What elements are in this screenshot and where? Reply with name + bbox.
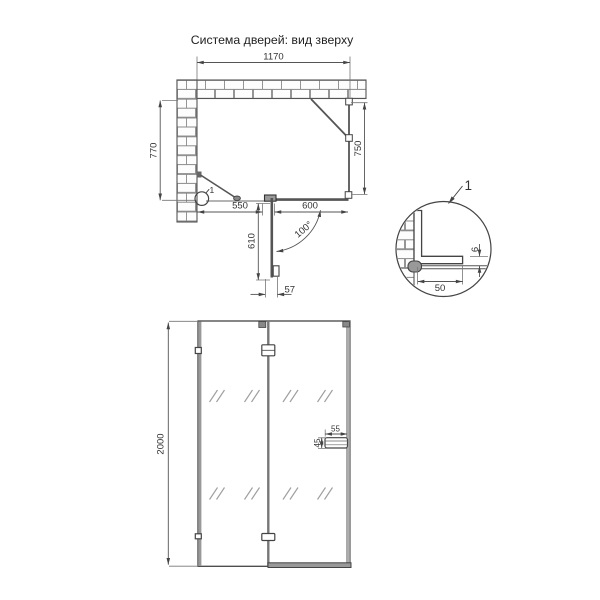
dim-770-label: 770: [149, 143, 160, 159]
dim-55-label: 55: [331, 425, 340, 434]
door-angle-label: 100°: [293, 219, 315, 240]
dim-45-label: 45: [313, 438, 322, 447]
detail-leader: 1: [449, 178, 473, 204]
dim-1170-label: 1170: [263, 52, 283, 63]
dim-57-label: 57: [285, 285, 296, 296]
dim-panel-right: 600: [275, 201, 349, 216]
dim-2000-label: 2000: [156, 433, 167, 454]
dim-550-label: 550: [232, 201, 248, 212]
top-bracket-right: [343, 322, 350, 328]
detail-callout: 1: [195, 185, 215, 206]
brick-wall-top: [177, 80, 366, 99]
door-pivot-bracket: [265, 195, 277, 201]
door-handle-front: [325, 438, 348, 448]
dim-height: 2000: [156, 321, 199, 566]
top-bracket-mid: [259, 322, 266, 328]
drawing-page: Система дверей: вид зверху 1170 770: [0, 0, 600, 600]
callout-1-label: 1: [210, 185, 215, 195]
detail-view: 50 6 1: [394, 178, 493, 298]
door-handle-top-view: [273, 266, 279, 276]
top-view: 1170 770 750: [149, 52, 368, 298]
drawing-title: Система дверей: вид зверху: [191, 33, 354, 47]
dim-6-label: 6: [470, 247, 481, 252]
bottom-threshold: [268, 563, 351, 568]
detail-1-label: 1: [465, 178, 473, 193]
dim-750-label: 750: [353, 141, 364, 157]
glass-clamp: [408, 261, 422, 272]
dim-door-width: 610: [246, 204, 270, 281]
support-bar-right: [311, 99, 347, 137]
front-view: 55 45 2000: [156, 321, 352, 568]
dim-610-label: 610: [246, 233, 257, 249]
dim-600-label: 600: [302, 201, 318, 212]
wall-mount: [197, 172, 202, 178]
door-swing: 100°: [277, 210, 321, 251]
technical-drawing: Система дверей: вид зверху 1170 770: [0, 0, 600, 600]
dim-side-panel: 750: [351, 103, 368, 195]
dim-50-label: 50: [435, 283, 446, 294]
